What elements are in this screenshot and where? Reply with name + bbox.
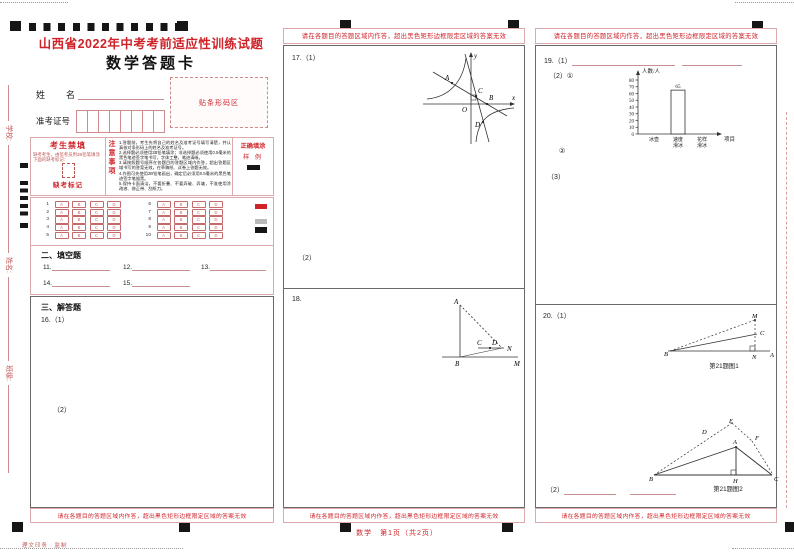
blank-15-num: 15. [123,280,132,287]
q19-answer-area[interactable]: 19.（1） （2）① 01020304050607080人数/人项目冰壶速度滑… [535,45,777,305]
answer-bubble-2-B[interactable]: B [72,209,86,216]
choice-row-9: 9ABCD [141,224,223,232]
q17-point-d: D [474,121,480,129]
answer-bubble-3-B[interactable]: B [72,216,86,223]
choice-row-4: 4ABCD [39,224,121,232]
svg-text:人数/人: 人数/人 [642,67,661,75]
q20-blank-line[interactable] [630,487,676,495]
svg-text:30: 30 [629,113,635,118]
blank-14-num: 14. [43,280,52,287]
answer-bubble-5-C[interactable]: C [90,232,104,239]
correct-fill-title: 正确填涂 [235,141,271,150]
exam-no-cell[interactable] [76,110,88,133]
edge-timing-bar [20,223,28,228]
svg-text:10: 10 [629,126,635,131]
choices-group-1-5: 1ABCD2ABCD3ABCD4ABCD5ABCD [39,201,121,239]
attention-section: 注意事项 1.答题前，考生先将自己的姓名及准考证号填写清楚，并认真核对条形码上的… [106,138,232,195]
reg-mark [179,522,190,532]
q20f2-point-d: D [701,429,707,436]
svg-text:50: 50 [629,99,635,104]
exam-no-cell[interactable] [143,110,154,133]
blank-15[interactable]: 15. [123,279,190,287]
sample-mark-red [255,204,267,209]
attention-item: 2.选择题必须使用2B铅笔填涂；非选择题必须使用0.5毫米的黑色笔迹签字笔书写，… [119,150,231,160]
attention-item: 3.请按照题号顺序在各题目的答题区域内作答，超出答题区域书写的答案无效，在草稿纸… [119,160,231,170]
answer-bubble-2-D[interactable]: D [107,209,121,216]
warning-strip: 请在各题目的答题区域内作答，超出黑色矩形边框限定区域的答案无效 [535,28,777,44]
exam-no-cell[interactable] [121,110,132,133]
bar-chart: 01020304050607080人数/人项目冰壶速度滑冰65花样滑冰 [598,64,770,158]
svg-text:滑冰: 滑冰 [673,142,683,149]
q20f2-point-f: F [754,435,760,442]
q20-part2-label: （2） [546,485,676,495]
choice-row-3: 3ABCD [39,216,121,224]
q18-point-n: N [506,345,512,353]
q17-axis-y: y [473,52,478,60]
answer-bubble-5-D[interactable]: D [107,232,121,239]
attention-item: 5.保持卡面清洁，不要折叠、不要弄破、弄皱，不准使用涂改液、修正带、刮纸刀。 [119,181,231,191]
answer-bubble-9-D[interactable]: D [209,224,223,231]
edge-name-label: 姓名: [4,253,14,277]
fill-section-title: 二、填空题 [41,250,81,261]
absent-mark-label: 缺考标记 [33,179,103,189]
answer-bubble-8-C[interactable]: C [192,216,206,223]
q16-answer-area[interactable]: 三、解答题 16.（1） （2） [30,296,274,508]
q18-point-b: B [455,360,460,368]
answer-bubble-8-D[interactable]: D [209,216,223,223]
right-seal-line [786,112,787,508]
choice-number: 1 [39,202,49,207]
q17-part2-label: （2） [298,253,316,263]
edge-school-label: 学校: [4,121,14,145]
blank-12-line[interactable] [132,263,190,271]
blank-14-line[interactable] [52,279,110,287]
svg-text:速度: 速度 [673,136,683,143]
cutline-top-left [0,2,68,3]
forbid-section: 考生禁填 缺考考生，由监考员用2B铅笔填涂下面的缺考标记： 缺考标记 [31,138,106,195]
sample-mark-gray [255,219,267,224]
q18-point-d: D [491,339,497,347]
printer-credit: 理文印务 监制 [22,541,68,549]
choice-number: 8 [141,217,151,222]
choice-number: 5 [39,233,49,238]
svg-text:80: 80 [629,79,635,84]
answer-bubble-1-B[interactable]: B [72,201,86,208]
answer-bubble-7-A[interactable]: A [157,209,171,216]
answer-bubble-8-B[interactable]: B [174,216,188,223]
barcode-area: 贴条形码区 [170,77,268,128]
q19-part3-label: （3） [547,172,565,182]
answer-bubble-10-D[interactable]: D [209,232,223,239]
q18-point-c: C [477,339,482,347]
q20-blank-line[interactable] [564,487,616,495]
svg-text:40: 40 [629,106,635,111]
reg-mark [10,21,21,31]
q17-figure: y x A B C D O [419,48,519,153]
q18-point-a: A [453,298,459,306]
q17-point-c: C [478,87,483,95]
q17-label: 17.（1） [292,53,320,63]
attention-items: 1.答题前，考生先将自己的姓名及准考证号填写清楚，并认真核对条形码上的姓名及准考… [119,140,231,193]
name-input-line[interactable] [78,99,164,100]
q20-fig2-caption: 第21题图2 [688,484,768,493]
blank-12[interactable]: 12. [123,263,190,271]
q18-figure: A B C D M N [432,293,527,376]
choice-row-7: 7ABCD [141,209,223,217]
forbid-text: 缺考考生，由监考员用2B铅笔填涂下面的缺考标记： [33,152,103,162]
choice-number: 9 [141,225,151,230]
reg-mark [12,522,23,532]
q16-label: 16.（1） [41,315,69,325]
q18-label: 18. [292,296,302,303]
answer-bubble-5-B[interactable]: B [72,232,86,239]
blank-11[interactable]: 11. [43,263,110,271]
choices-box: 1ABCD2ABCD3ABCD4ABCD5ABCD 6ABCD7ABCD8ABC… [30,197,274,246]
sample-mark-black [255,227,267,233]
forbid-title: 考生禁填 [33,140,103,151]
svg-text:花样: 花样 [697,136,707,143]
q20f1-point-n: N [751,354,757,361]
choice-row-10: 10ABCD [141,231,223,239]
exam-no-cell[interactable] [88,110,99,133]
q17-answer-area[interactable]: 17.（1） （2） y x A B C [283,45,525,289]
answer-bubble-1-C[interactable]: C [90,201,104,208]
answer-bubble-4-B[interactable]: B [72,224,86,231]
name-label: 姓 名 [36,88,76,101]
answer-sheet-page: 学校: 姓名: 班级: 山西省2022年中考考前适应性训练试题 数学答题卡 姓 … [0,0,794,554]
q20f2-point-a: A [732,439,737,446]
q20-label: 20.（1） [543,311,571,321]
attention-item: 4.作图可先使用2B铅笔画出，确定后必须用0.5毫米的黑色笔迹签字笔描黑。 [119,171,231,181]
exam-no-label: 准考证号 [36,115,70,127]
absent-mark-box[interactable] [62,163,75,178]
answer-bubble-2-C[interactable]: C [90,209,104,216]
page-footer: 数学 第1页（共2页） [297,528,497,538]
answer-bubble-3-C[interactable]: C [90,216,104,223]
blank-15-line[interactable] [132,279,190,287]
edge-timing-bar [20,163,28,168]
choice-row-8: 8ABCD [141,216,223,224]
svg-text:0: 0 [632,133,635,138]
svg-text:滑冰: 滑冰 [697,142,707,149]
svg-text:冰壶: 冰壶 [649,136,659,143]
q20f2-point-b: B [649,476,653,483]
answer-bubble-10-B[interactable]: B [174,232,188,239]
instructions-box: 考生禁填 缺考考生，由监考员用2B铅笔填涂下面的缺考标记： 缺考标记 注意事项 … [30,137,274,196]
answer-bubble-4-A[interactable]: A [55,224,69,231]
choice-number: 2 [39,210,49,215]
answer-bubble-7-B[interactable]: B [174,209,188,216]
exam-title: 山西省2022年中考考前适应性训练试题 [30,33,272,52]
q17-axis-x: x [511,94,516,102]
warning-strip: 请在各题目的答题区域内作答，超出黑色矩形边框限定区域的答案无效 [283,28,525,44]
q20-part2-text: （2） [546,487,564,494]
answer-bubble-2-A[interactable]: A [55,209,69,216]
svg-text:65: 65 [675,84,681,90]
sample-label: 样 例 [235,152,271,161]
svg-text:20: 20 [629,119,635,124]
answer-bubble-1-A[interactable]: A [55,201,69,208]
sheet-subtitle: 数学答题卡 [30,52,272,73]
blank-11-line[interactable] [52,263,110,271]
answer-bubble-7-D[interactable]: D [209,209,223,216]
q20f1-point-b: B [664,351,668,358]
q17-point-a: A [444,74,450,82]
warning-strip: 请在各题目的答题区域内作答，超出黑色矩形边框限定区域的答案无效 [535,508,777,523]
blank-14[interactable]: 14. [43,279,110,287]
reg-mark [502,522,513,532]
answer-bubble-9-A[interactable]: A [157,224,171,231]
exam-no-cell[interactable] [132,110,143,133]
choice-row-5: 5ABCD [39,231,121,239]
attention-title: 注意事项 [107,140,117,193]
blank-11-num: 11. [43,264,52,271]
q20-answer-area[interactable]: 20.（1） B M C N A 第21题图1 [535,304,777,508]
edge-timing-bars [20,181,28,219]
exam-no-cell[interactable] [154,110,165,133]
choice-row-1: 1ABCD [39,201,121,209]
attention-item: 1.答题前，考生先将自己的姓名及准考证号填写清楚，并认真核对条形码上的姓名及准考… [119,140,231,150]
svg-text:项目: 项目 [724,136,735,143]
q20f2-point-e: E [728,418,733,425]
svg-text:60: 60 [629,92,635,97]
q18-answer-area[interactable]: 18. A B C D M N [283,288,525,508]
edge-class-label: 班级: [4,361,14,385]
choice-number: 6 [141,202,151,207]
svg-text:70: 70 [629,86,635,91]
exam-no-cell[interactable] [99,110,110,133]
answer-bubble-6-A[interactable]: A [157,201,171,208]
q20f2-point-h: H [732,478,738,483]
answer-bubble-5-A[interactable]: A [55,232,69,239]
q20-fig1-caption: 第21题图1 [684,361,764,370]
choice-number: 4 [39,225,49,230]
answer-bubble-9-C[interactable]: C [192,224,206,231]
answer-bubble-10-C[interactable]: C [192,232,206,239]
q18-point-m: M [513,360,521,368]
q20f2-point-c: C [774,476,779,483]
blank-13-line[interactable] [210,263,266,271]
cutline-top-right [735,2,794,3]
blank-13[interactable]: 13. [201,263,266,271]
q19-part2-label: （2）① [549,71,573,81]
barcode-area-label: 贴条形码区 [199,98,239,108]
q17-origin: O [462,106,467,114]
answer-bubble-4-D[interactable]: D [107,224,121,231]
choice-row-6: 6ABCD [141,201,223,209]
q20f1-point-a: A [769,352,774,359]
blank-13-num: 13. [201,264,210,271]
cutline-bottom-right [732,548,794,549]
answer-bubble-6-C[interactable]: C [192,201,206,208]
q20-figure-1: B M C N A [664,311,776,366]
correct-fill-section: 正确填涂 样 例 [232,138,273,195]
q20f1-point-c: C [760,330,765,337]
warning-strip: 请在各题目的答题区域内作答，超出黑色矩形边框限定区域的答案无效 [283,508,525,523]
answer-bubble-6-D[interactable]: D [209,201,223,208]
q17-point-b: B [489,94,494,102]
q19-label-text: 19.（1） [544,58,572,65]
answer-section-title: 三、解答题 [41,302,81,313]
q20f1-point-m: M [751,313,758,320]
q20-figure-2: B C A H D E F [648,417,780,488]
answer-bubble-1-D[interactable]: D [107,201,121,208]
choice-number: 10 [141,233,151,238]
exam-no-grid[interactable] [76,110,165,131]
answer-bubble-3-D[interactable]: D [107,216,121,223]
choice-number: 3 [39,217,49,222]
warning-strip: 请在各题目的答题区域内作答，超出黑色矩形边框限定区域的答案无效 [30,508,274,523]
q16-part2-label: （2） [53,405,71,415]
q19-part2b-label: ② [559,147,565,155]
reg-mark [177,21,188,31]
answer-bubble-8-A[interactable]: A [157,216,171,223]
answer-bubble-10-A[interactable]: A [157,232,171,239]
answer-bubble-6-B[interactable]: B [174,201,188,208]
blank-12-num: 12. [123,264,132,271]
answer-bubble-4-C[interactable]: C [90,224,104,231]
choice-number: 7 [141,210,151,215]
reg-mark [785,522,794,532]
filled-mark-sample [247,165,260,170]
timing-marks [29,23,177,31]
exam-no-cell[interactable] [110,110,121,133]
choices-group-6-10: 6ABCD7ABCD8ABCD9ABCD10ABCD [141,201,223,239]
choice-row-2: 2ABCD [39,209,121,217]
answer-bubble-3-A[interactable]: A [55,216,69,223]
fill-blanks-box: 二、填空题 11. 12. 13. 14. 15. [30,245,274,295]
answer-bubble-7-C[interactable]: C [192,209,206,216]
answer-bubble-9-B[interactable]: B [174,224,188,231]
